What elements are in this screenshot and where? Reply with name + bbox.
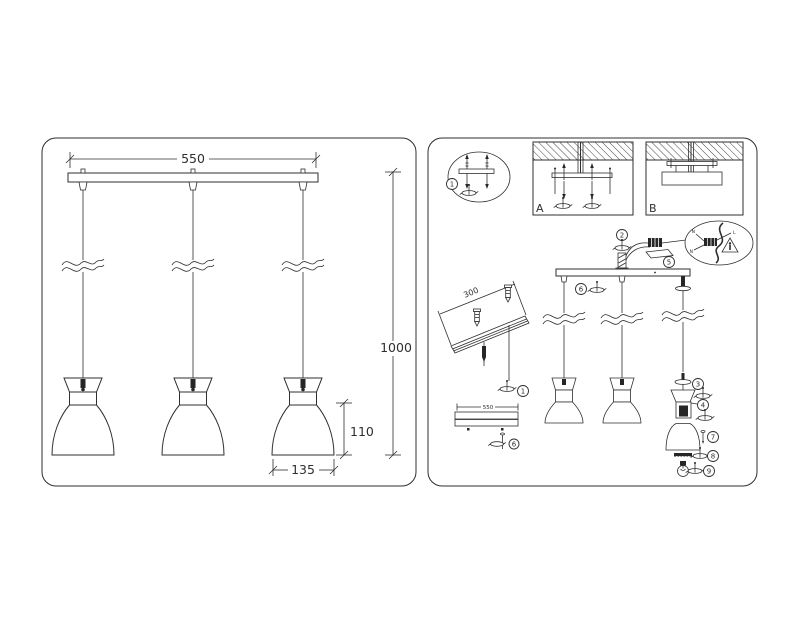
right-panel-assembly-instructions: 1 [428,138,757,486]
svg-text:9: 9 [707,468,711,476]
callout-6-bar-screw-detail: 6 [509,439,519,449]
svg-text:7: 7 [711,434,715,442]
lamp-shade [603,378,641,423]
dim-110-label: 110 [350,424,374,439]
cord-break-symbol [662,309,704,322]
callout-9-bulb: 9 [704,466,715,477]
dim-1000-label: 1000 [380,340,412,355]
wire-label-n-top: N [692,229,695,235]
hand-turn-icon [613,239,632,250]
hand-turn-icon [498,380,517,391]
svg-text:3: 3 [696,381,700,389]
dimension-height-1000: 1000 [380,168,412,459]
mounting-bracket [552,173,612,178]
svg-text:5: 5 [667,259,671,267]
assembly-pendant-1 [543,276,585,423]
hand-turn-icon [588,281,607,292]
bar-screw-icon [488,433,505,449]
dimension-shade-height-110: 110 [336,399,374,459]
callout-7-shade-screw: 7 [708,432,719,443]
main-assembly: 2 5 [543,221,753,477]
locknut-washer [675,380,691,385]
svg-text:1: 1 [521,388,525,396]
left-panel-dimension-drawing: 550 1000 110 13 [42,138,416,486]
shade-holder [671,390,695,402]
callout-2-cord-grip: 2 [617,230,628,241]
terminal-block-small [704,238,717,246]
mount-option-a-label: A [536,202,544,215]
glass-shade [666,424,700,451]
suspension-bar [556,269,690,276]
cord-break-symbol [62,259,104,272]
hand-turn-icon [696,409,715,420]
bracket-detail-ellipse: 1 [447,152,511,202]
cord-break-symbol [601,312,643,325]
lamp-shade [52,378,114,455]
supply-cable [626,243,648,256]
lamp-shade [162,378,224,455]
rail-screw-icon [482,342,486,366]
svg-text:1: 1 [450,181,454,189]
lamp-shade [545,378,583,423]
assembly-pendant-2 [601,276,643,423]
suspension-bar-detail: 550 6 [455,404,519,450]
bar-dim-label: 550 [483,405,494,411]
callout-3-locknut: 3 [693,379,704,390]
dimension-shade-width-135: 135 [269,459,338,477]
mount-option-b-label: B [649,202,657,215]
wall-anchor-icon [505,285,512,302]
ceiling-bar [68,169,318,182]
wire-label-n-left: N [690,249,693,255]
ceiling-hatch [646,142,743,160]
callout-1-anchor-set: 1 [447,179,458,190]
dim-135-label: 135 [291,462,315,477]
mounting-bracket [667,162,717,166]
callout-1-rail-anchor: 1 [518,386,529,397]
detail-leader-line [662,240,686,243]
mounting-option-a: A [533,142,633,215]
cord-break-symbol [543,312,585,325]
callout-4-lampholder: 4 [698,400,709,411]
callout-8-shade-ring: 8 [708,451,719,462]
svg-text:8: 8 [711,453,715,461]
svg-text:6: 6 [579,286,584,294]
dimension-width-550: 550 [66,151,320,168]
terminal-block [646,238,673,258]
cord-break-symbol [282,259,324,272]
supply-cable [626,247,650,260]
shade-screw-icon [701,431,705,445]
shade-ring [674,453,692,457]
wall-anchor-icon [474,309,481,326]
canopy-bar [662,172,722,185]
pendant-1 [52,182,114,455]
svg-text:4: 4 [701,402,706,410]
dim-550-label: 550 [181,151,205,166]
svg-text:2: 2 [620,232,624,240]
svg-text:6: 6 [512,441,517,449]
assembly-pendant-3-exploded: 3 4 7 [662,276,719,477]
hand-turn-icon [686,462,705,473]
rail-dim-label: 300 [462,286,480,300]
pendant-3 [272,182,334,455]
callout-5-terminal: 5 [664,257,675,268]
cord-break-symbol [172,259,214,272]
wiring-detail-ellipse: N L N [685,221,753,265]
rail-channel [451,316,529,353]
callout-6-bar-screw: 6 [576,284,587,295]
mounting-option-b: B [646,142,743,215]
pendant-2 [162,182,224,455]
lamp-shade [272,378,334,455]
bulb-icon [678,461,689,477]
mounting-rail-detail: 300 1 [438,281,529,397]
pendant-lamp-instruction-diagram: 550 1000 110 13 [0,0,800,622]
